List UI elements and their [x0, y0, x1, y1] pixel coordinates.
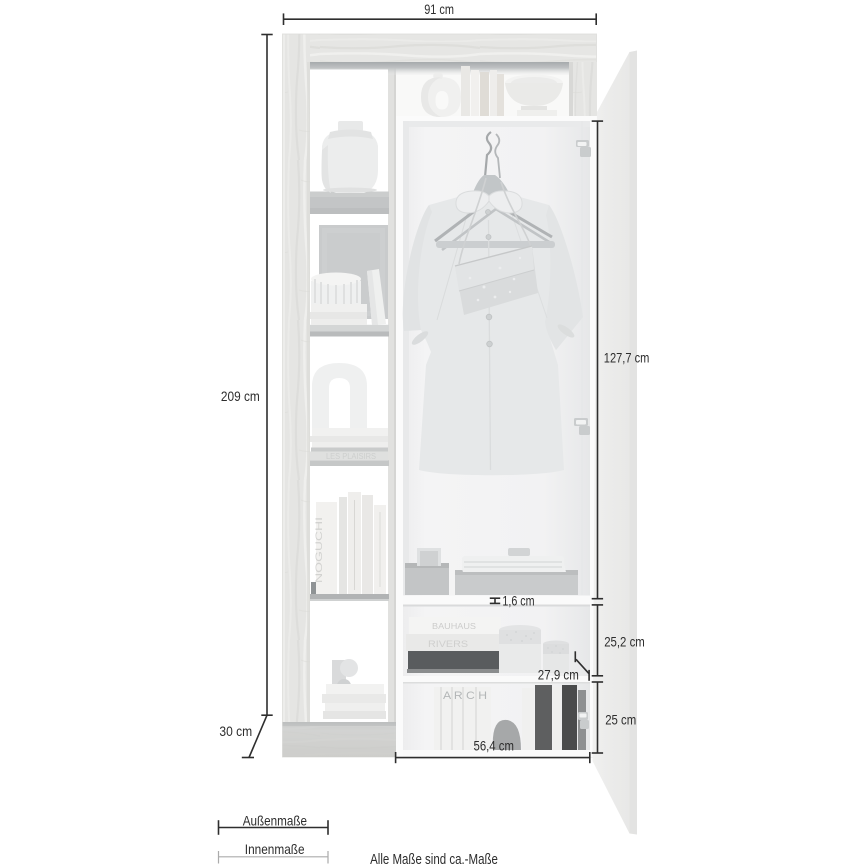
- svg-text:30 cm: 30 cm: [219, 724, 252, 739]
- svg-text:LES PLAISIRS: LES PLAISIRS: [326, 452, 376, 461]
- svg-text:Außenmaße: Außenmaße: [243, 814, 308, 829]
- svg-text:27,9 cm: 27,9 cm: [538, 667, 579, 682]
- svg-text:A R C H: A R C H: [443, 690, 487, 702]
- svg-text:RIVERS: RIVERS: [428, 639, 468, 649]
- svg-text:209 cm: 209 cm: [221, 389, 260, 404]
- svg-text:56,4 cm: 56,4 cm: [474, 738, 514, 753]
- svg-text:BAUHAUS: BAUHAUS: [432, 622, 476, 631]
- svg-text:91 cm: 91 cm: [424, 2, 454, 17]
- svg-text:NOGUCHI: NOGUCHI: [314, 517, 324, 583]
- svg-text:25,2 cm: 25,2 cm: [604, 634, 645, 649]
- svg-text:Alle Maße sind ca.-Maße: Alle Maße sind ca.-Maße: [370, 852, 498, 868]
- svg-text:25 cm: 25 cm: [605, 712, 636, 727]
- svg-text:1,6 cm: 1,6 cm: [502, 594, 534, 609]
- svg-text:127,7 cm: 127,7 cm: [604, 350, 650, 365]
- svg-text:Innenmaße: Innenmaße: [245, 842, 305, 857]
